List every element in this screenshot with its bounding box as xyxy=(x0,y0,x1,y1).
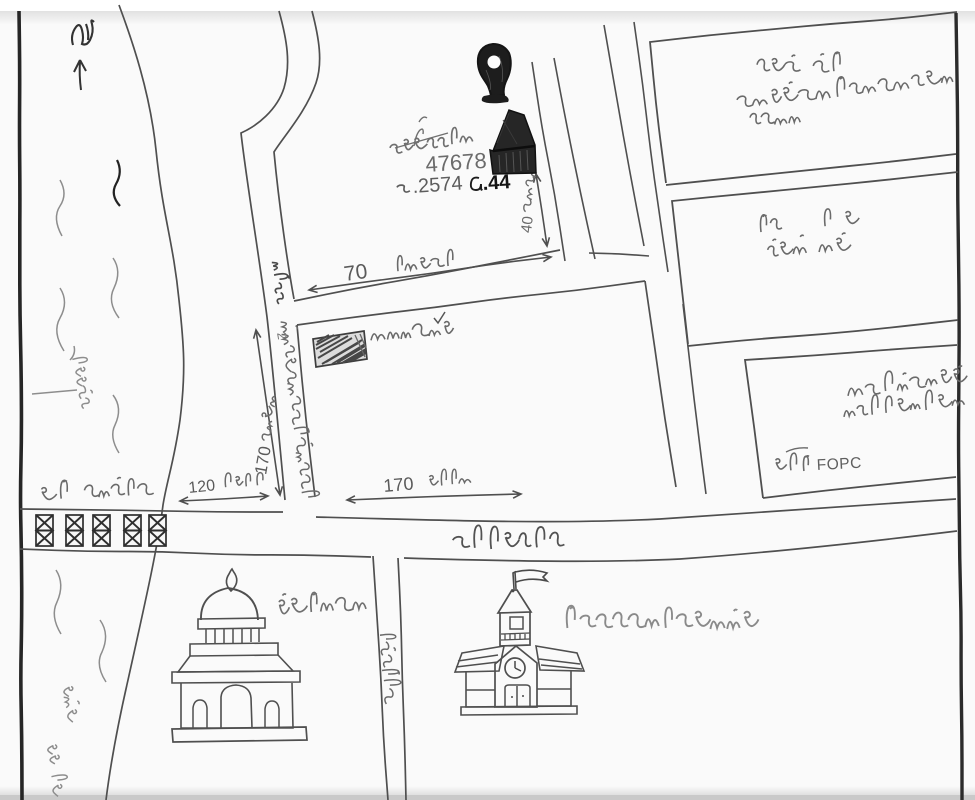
svg-text:70: 70 xyxy=(342,260,368,286)
svg-text:170: 170 xyxy=(383,473,415,496)
svg-text:40: 40 xyxy=(518,215,537,234)
svg-text:.2574: .2574 xyxy=(412,173,463,198)
svg-text:.44: .44 xyxy=(482,171,512,195)
svg-text:120: 120 xyxy=(188,477,216,497)
svg-text:FOPC: FOPC xyxy=(816,455,862,474)
